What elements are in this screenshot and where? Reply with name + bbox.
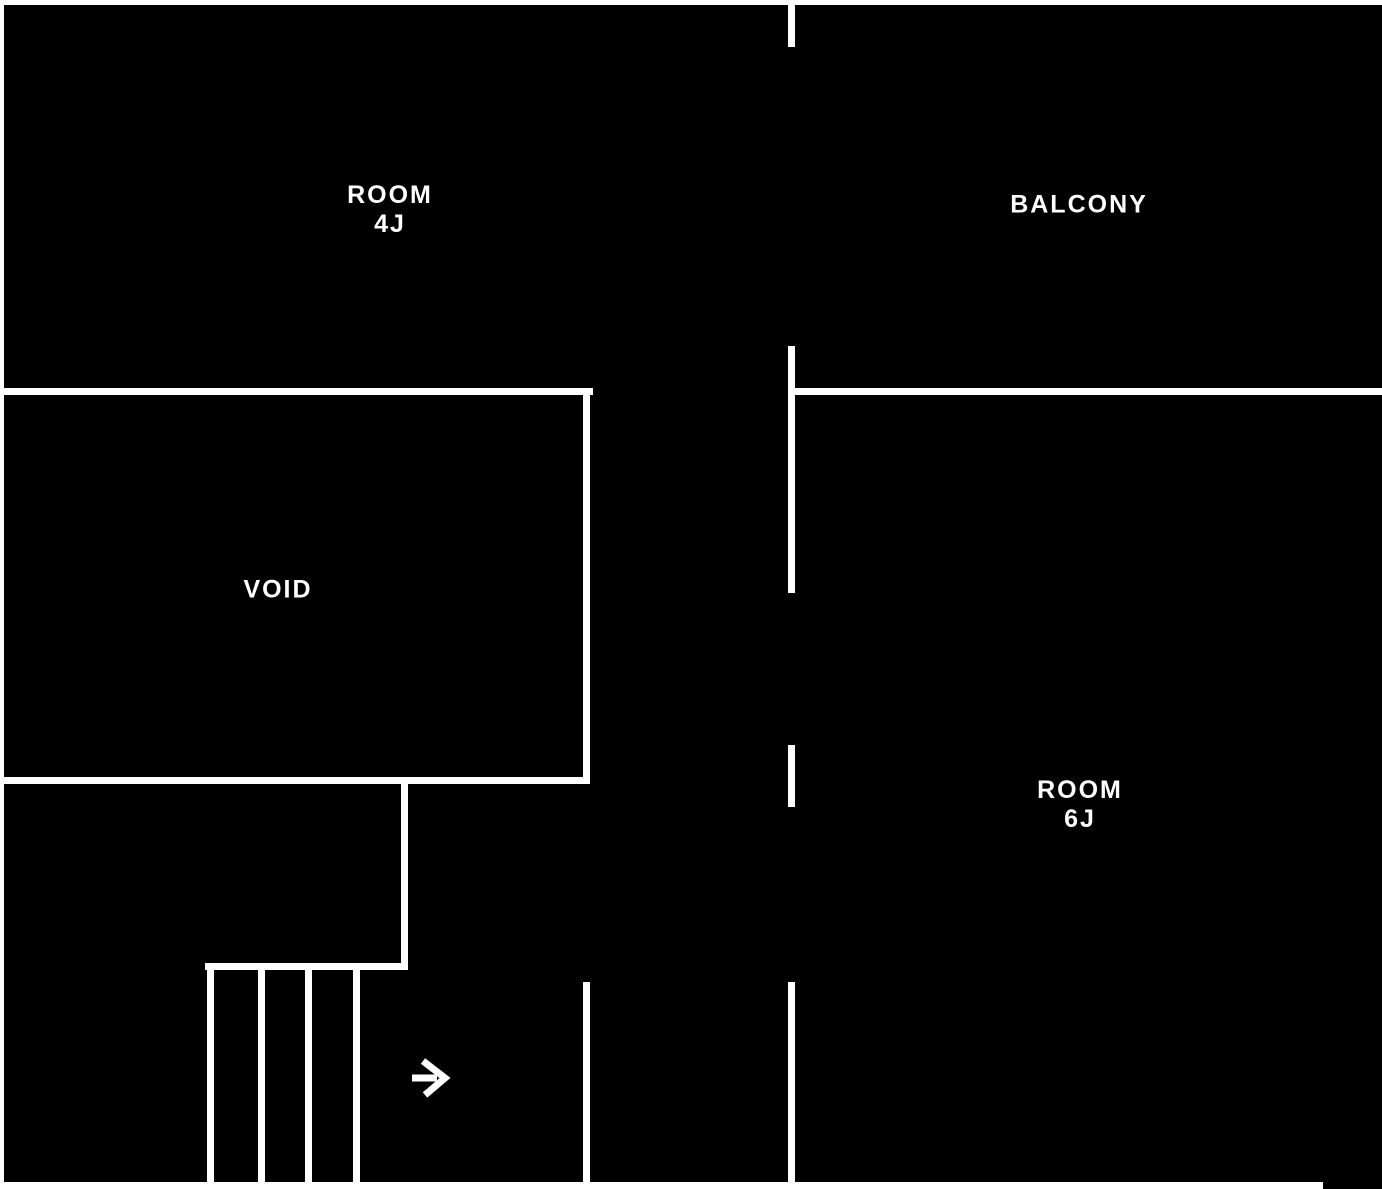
room-4j-bottom-wall xyxy=(0,388,593,395)
stair-tread-line-2 xyxy=(258,969,265,1182)
void-right-wall xyxy=(583,388,590,783)
room-4j-label: ROOM 4J xyxy=(347,181,433,239)
stair-tread-line-4 xyxy=(353,969,360,1182)
balcony-label: BALCONY xyxy=(1010,191,1148,220)
landing-right-wall xyxy=(401,783,408,969)
mid-wall-upper-segment xyxy=(788,346,795,593)
border-left xyxy=(0,0,4,1189)
mid-wall-top-segment xyxy=(788,5,795,47)
border-bottom xyxy=(0,1182,1323,1189)
arrow-right-icon xyxy=(405,1055,453,1101)
border-top xyxy=(0,0,1382,5)
room-6j-label: ROOM 6J xyxy=(1037,776,1123,834)
mid-wall-bottom-segment xyxy=(788,982,795,1189)
corridor-left-wall xyxy=(583,982,590,1189)
stair-tread-line-1 xyxy=(207,969,214,1182)
stair-tread-line-3 xyxy=(305,969,312,1182)
mid-wall-lower-segment xyxy=(788,745,795,807)
void-label: VOID xyxy=(243,576,312,605)
room-6j-top-wall xyxy=(788,388,1382,395)
floor-plan: ROOM 4J BALCONY VOID ROOM 6J xyxy=(0,0,1382,1189)
void-bottom-wall xyxy=(0,777,590,784)
